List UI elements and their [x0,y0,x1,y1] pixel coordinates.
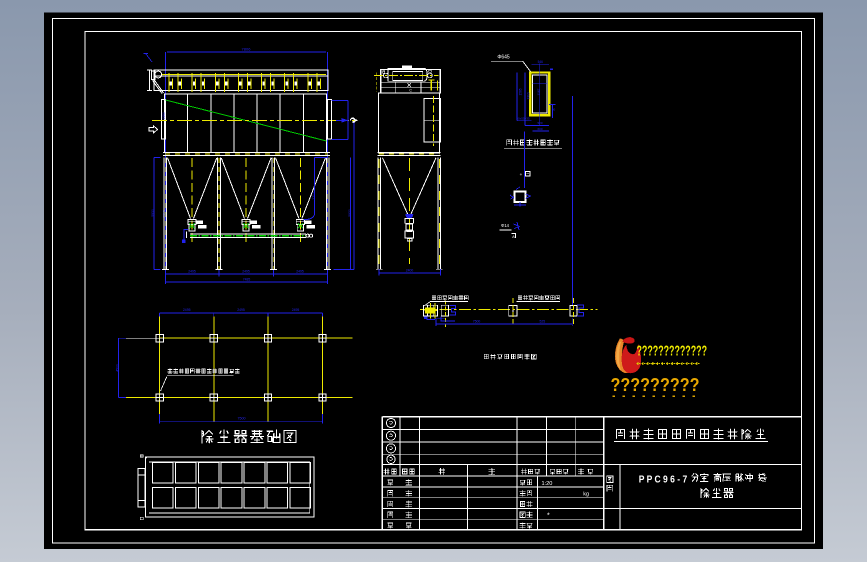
svg-text:1:20: 1:20 [542,481,553,487]
svg-text:1310: 1310 [526,92,530,99]
svg-text:2712: 2712 [312,192,316,200]
svg-text:2495: 2495 [242,269,250,273]
svg-text:1350: 1350 [162,112,166,120]
svg-text:A: A [512,234,515,239]
svg-text:Φ14: Φ14 [501,223,510,228]
svg-text:5930: 5930 [151,209,155,217]
svg-text:*: * [547,513,550,520]
svg-text:600: 600 [537,127,542,131]
svg-text:kg: kg [583,492,589,498]
svg-text:7500: 7500 [473,319,481,323]
svg-text:Φ645: Φ645 [497,55,510,61]
svg-text:4500: 4500 [116,364,120,372]
svg-text:1585: 1585 [519,88,523,95]
svg-text:525: 525 [539,319,545,323]
svg-text:?????????????: ????????????? [637,343,708,360]
svg-text:520: 520 [537,121,542,125]
svg-text:546: 546 [538,60,544,64]
svg-text:2495: 2495 [292,308,300,312]
svg-text:40: 40 [552,108,556,112]
svg-text:2495: 2495 [237,308,245,312]
svg-text:7485: 7485 [243,278,251,282]
svg-text:60x55=35: 60x55=35 [516,117,530,121]
svg-text:2400: 2400 [406,269,414,273]
svg-text:?????????: ????????? [611,374,700,395]
svg-text:7806: 7806 [242,47,252,52]
svg-text:+: + [520,172,523,177]
svg-text:2495: 2495 [296,269,304,273]
svg-text:7500: 7500 [238,417,246,421]
svg-text:5930: 5930 [348,209,352,217]
svg-text:2495: 2495 [183,308,191,312]
svg-text:P P C 9 6 - 7: P P C 9 6 - 7 [639,475,688,486]
svg-text:2495: 2495 [188,269,196,273]
svg-text:1167: 1167 [537,88,541,95]
